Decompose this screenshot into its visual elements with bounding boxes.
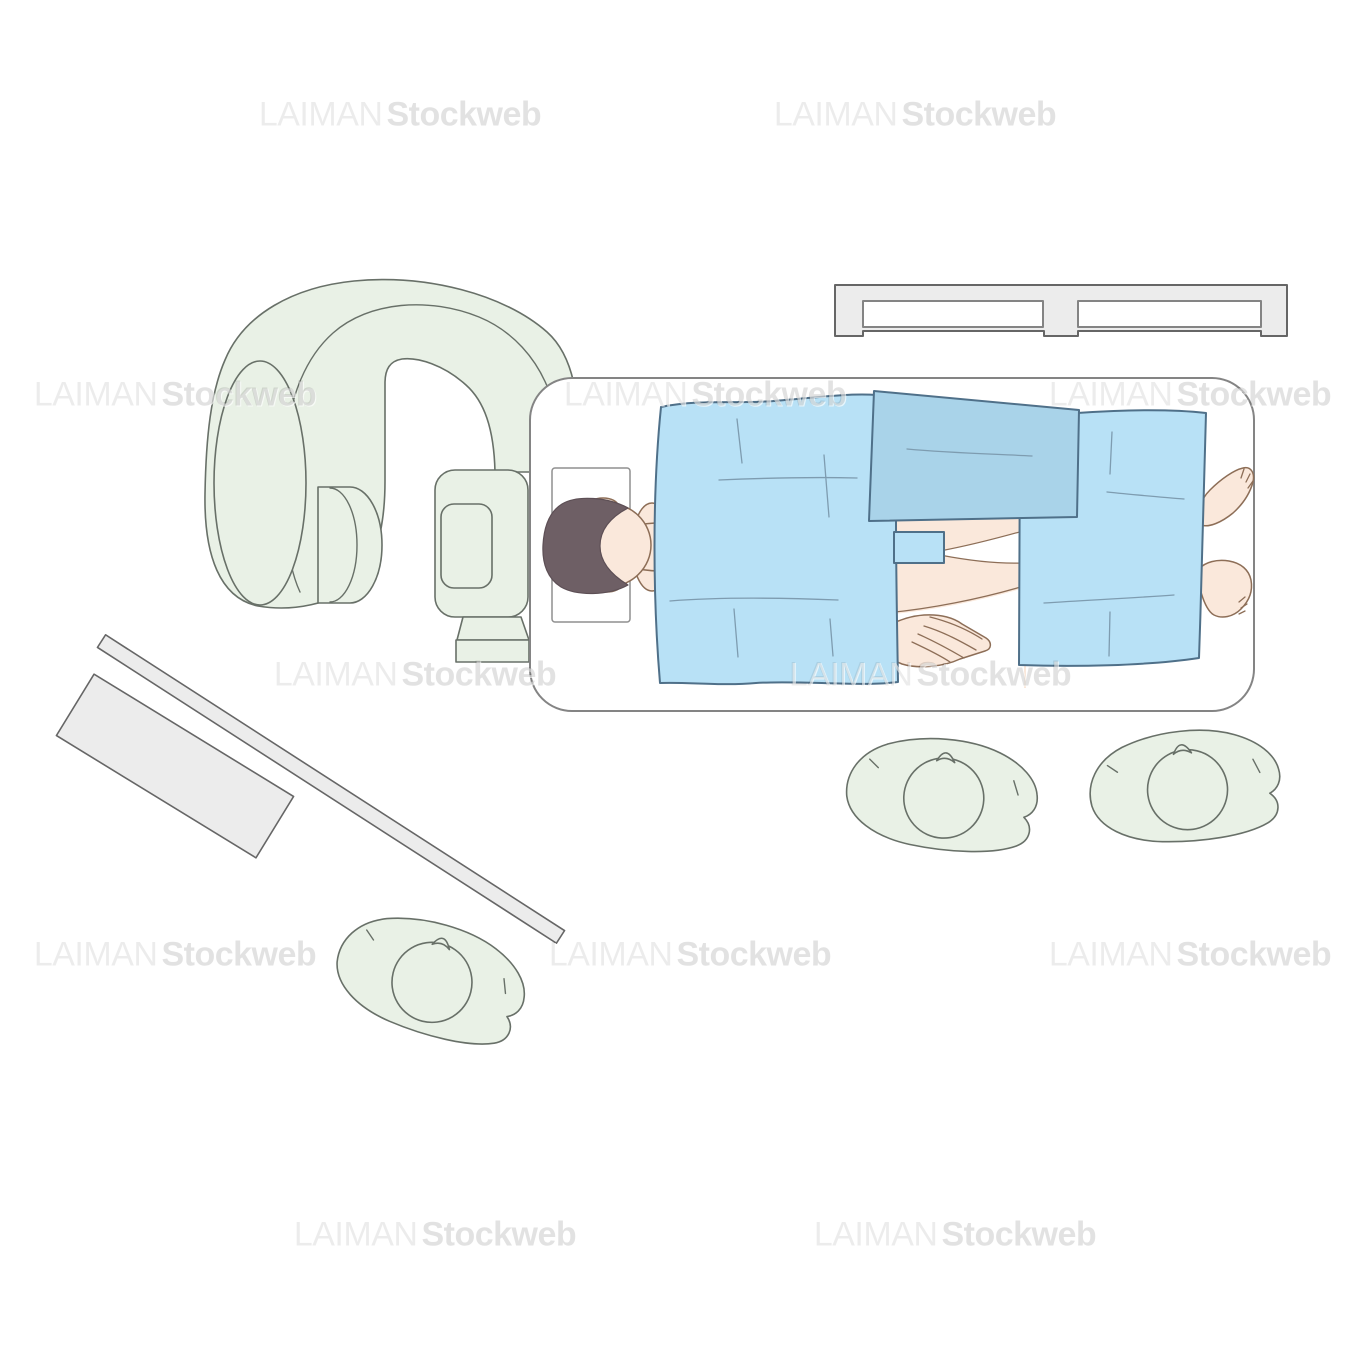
detector-pedestal: [457, 617, 529, 640]
staff-member-2: [1083, 718, 1287, 855]
staff-member-1: [844, 734, 1040, 855]
rail-panel-right: [1078, 301, 1261, 327]
illustration-canvas: LAIMANStockweb LAIMANStockweb LAIMANStoc…: [0, 0, 1350, 1350]
instrument-table: [56, 674, 293, 858]
detector-panel: [441, 504, 492, 588]
c-arm-machine: [205, 280, 577, 662]
sterile-towel: [894, 532, 944, 563]
upper-body-drape: [655, 395, 899, 685]
operating-room-illustration: [0, 0, 1350, 1350]
counterweight-disk: [214, 361, 306, 605]
patient-head: [543, 498, 672, 594]
folded-chest-drape: [869, 391, 1079, 521]
detector-base: [456, 640, 529, 662]
equipment-rail: [835, 285, 1287, 336]
x-ray-tube-cylinder: [318, 487, 382, 603]
staff-member-3: [325, 902, 537, 1056]
rail-panel-left: [863, 301, 1043, 327]
